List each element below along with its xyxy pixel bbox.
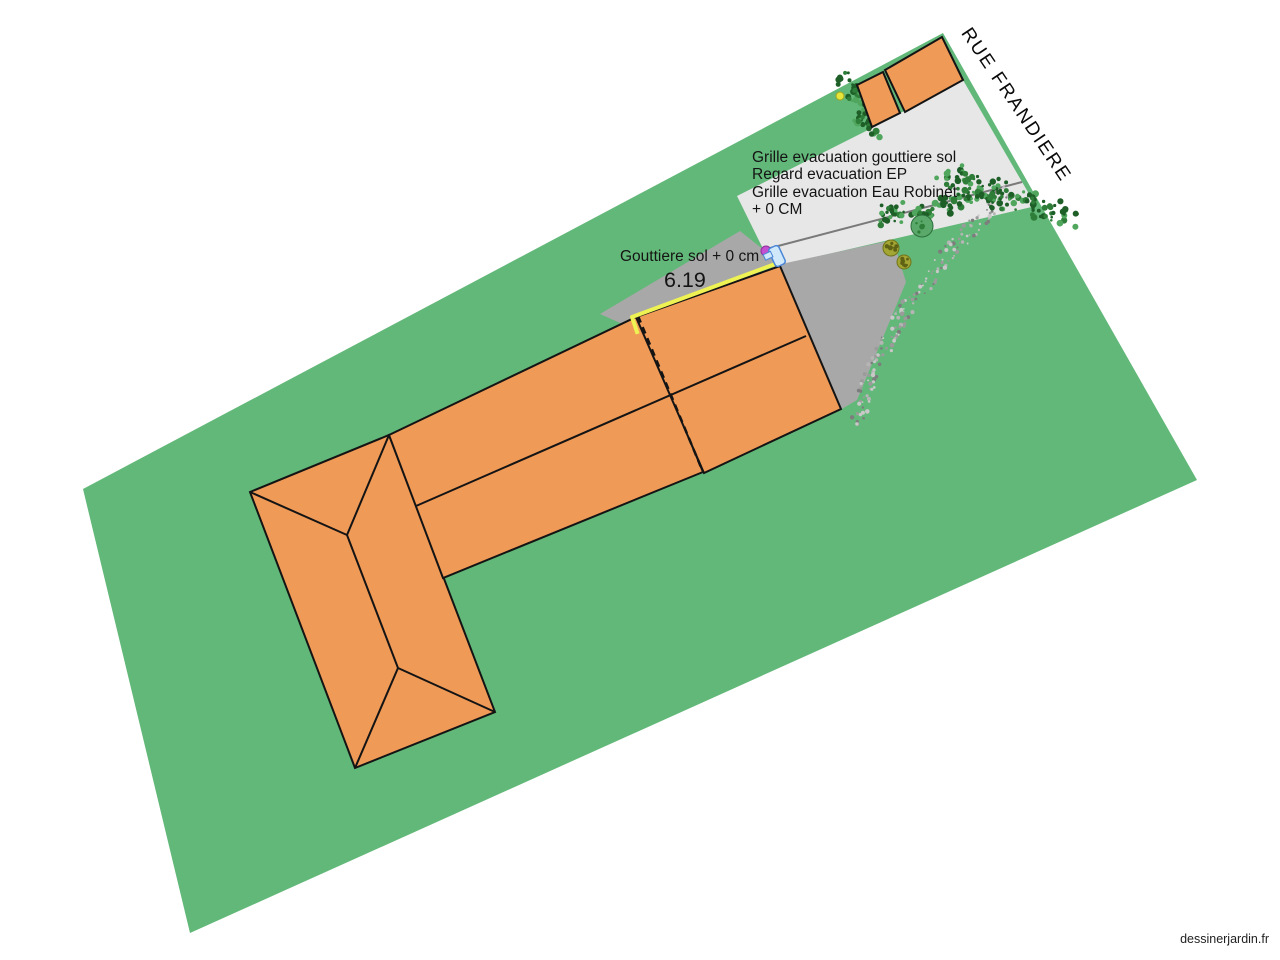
gravel-dot [951,238,953,240]
gravel-dot [865,409,870,414]
gravel-dot [986,209,988,211]
hedge-blob [1060,209,1066,215]
gravel-dot [882,337,884,339]
gravel-dot [928,270,930,272]
gravel-dot [896,316,900,320]
hedge-blob [996,177,1000,181]
gravel-dot [988,218,990,220]
hedge-blob [969,200,973,204]
hedge-blob [962,194,966,198]
gravel-dot [868,400,871,403]
evacuation-annotation-line-4: + 0 CM [752,201,957,218]
hedge-blob [1004,188,1009,193]
gravel-dot [969,234,971,236]
gravel-dot [890,316,894,320]
gravel-dot [891,336,893,338]
hedge-blob [965,189,968,192]
bush-dot [919,224,924,229]
gravel-dot [929,287,932,290]
gravel-dot [910,310,914,314]
hedge-blob [1042,200,1045,203]
gravel-dot [850,415,854,419]
bush-dot [921,220,923,222]
watermark: dessinerjardin.fr [1180,932,1269,946]
gutter-annotation[interactable]: Gouttiere sol + 0 cm [620,248,759,266]
gravel-dot [947,260,949,262]
gravel-dot [867,374,870,377]
marker-yellow-dot[interactable] [836,92,844,100]
hedge-blob [837,75,843,81]
hedge-blob [991,201,994,204]
gravel-dot [903,317,907,321]
hedge-blob [957,201,963,207]
hedge-blob [860,115,864,119]
gravel-dot [898,304,902,308]
hedge-blob [843,71,847,75]
gravel-dot [936,270,939,273]
hedge-blob [848,78,852,82]
hedge-blob [1000,195,1004,199]
gravel-dot [971,219,974,222]
hedge-blob [1037,209,1041,213]
hedge-blob [869,131,875,137]
gravel-dot [911,298,914,301]
hedge-blob [989,205,993,209]
gravel-dot [896,310,898,312]
gravel-dot [934,259,936,261]
bush-dot [893,248,897,252]
gravel-dot [900,312,905,317]
gravel-dot [959,242,961,244]
gravel-dot [912,302,914,304]
bush-olive-2[interactable] [897,255,911,269]
gravel-dot [871,362,873,364]
gravel-dot [894,312,897,315]
gravel-dot [918,285,922,289]
gravel-dot [866,394,869,397]
hedge-blob [987,194,994,201]
hedge-blob [899,220,903,224]
gravel-dot [855,422,858,425]
gravel-dot [856,412,859,415]
hedge-blob [1030,212,1035,217]
gravel-dot [870,388,873,391]
gravel-dot [962,224,966,228]
gravel-dot [979,223,981,225]
bush-dot [906,264,908,266]
gravel-dot [953,255,955,257]
hedge-blob [997,192,1000,195]
hedge-blob [1047,203,1053,209]
gravel-dot [944,245,946,247]
bush-dot [915,222,917,224]
hedge-blob [1057,198,1063,204]
hedge-blob [991,185,996,190]
gravel-dot [972,234,976,238]
gravel-dot [957,247,959,249]
hedge-blob [975,194,980,199]
hedge-blob [1050,219,1053,222]
hedge-blob [981,185,984,188]
hedge-blob [1015,194,1020,199]
gravel-dot [873,360,876,363]
hedge-blob [876,134,882,140]
hedge-blob [1042,205,1048,211]
gravel-dot [881,353,884,356]
evacuation-annotation-line-1: Grille evacuation gouttiere sol [752,149,957,166]
gravel-dot [978,229,980,231]
hedge-blob [878,220,881,223]
gravel-dot [898,325,901,328]
gravel-dot [863,396,865,398]
bush-dot [902,263,906,267]
gravel-dot [890,327,894,331]
hedge-blob [1076,213,1079,216]
gravel-dot [937,267,940,270]
gravel-dot [915,298,918,301]
gravel-dot [942,259,944,261]
gravel-dot [924,292,926,294]
hedge-blob [853,88,858,93]
hedge-blob [979,192,985,198]
gravel-dot [943,266,947,270]
gravel-dot [961,240,964,243]
hedge-blob [960,163,965,168]
gravel-dot [932,283,934,285]
gravel-dot [857,402,861,406]
hedge-blob [878,222,884,228]
gravel-dot [944,248,948,252]
hedge-blob [1057,220,1064,227]
hedge-blob [857,110,862,115]
bush-dot [890,242,893,245]
gravel-dot [874,355,877,358]
bush-dot [888,245,893,250]
gravel-dot [890,349,893,352]
hedge-blob [856,119,862,125]
bush-dot [900,257,904,261]
gravel-dot [949,243,953,247]
gravel-dot [901,299,905,303]
gravel-dot [867,379,869,381]
hedge-blob [1050,216,1053,219]
gravel-dot [952,257,954,259]
hedge-blob [1005,203,1009,207]
hedge-blob [977,185,981,189]
gravel-dot [925,277,927,279]
garden-plan-page: Grille evacuation gouttiere sol Regard e… [0,0,1280,960]
hedge-blob [1008,192,1014,198]
gravel-dot [958,237,961,240]
evacuation-annotation-line-2: Regard evacuation EP [752,166,957,183]
gravel-dot [922,285,924,287]
hedge-blob [1027,194,1030,197]
gravel-dot [871,356,875,360]
hedge-blob [976,179,981,184]
hedge-blob [1000,201,1003,204]
gravel-dot [938,250,942,254]
gravel-dot [860,382,863,385]
gravel-dot [913,293,916,296]
hedge-blob [847,71,850,74]
gravel-dot [894,326,897,329]
evacuation-annotation-line-3: Grille evacuation Eau Robinet [752,184,957,201]
gravel-dot [873,386,876,389]
hedge-blob [964,197,968,201]
gravel-dot [960,228,963,231]
gravel-dot [885,347,888,350]
hedge-blob [965,176,971,182]
hedge-blob [970,197,973,200]
gravel-dot [960,233,963,236]
hedge-blob [1053,204,1056,207]
gravel-dot [859,413,862,416]
gravel-dot [897,330,901,334]
hedge-blob [962,171,968,177]
hedge-blob [1011,200,1017,206]
evacuation-annotation[interactable]: Grille evacuation gouttiere sol Regard e… [752,149,957,219]
hedge-blob [972,191,975,194]
gravel-dot [880,339,883,342]
hedge-blob [1004,180,1008,184]
gravel-dot [878,363,882,367]
gravel-dot [868,382,872,386]
gravel-dot [863,372,867,376]
gravel-dot [940,267,942,269]
gravel-dot [925,280,927,282]
bush-dot [894,244,898,248]
gravel-dot [871,373,875,377]
gravel-dot [970,224,973,227]
gravel-dot [976,216,979,219]
gravel-dot [941,261,944,264]
hedge-blob [988,183,991,186]
gravel-dot [932,270,934,272]
hedge-blob [1030,196,1034,200]
hedge-blob [1051,211,1055,215]
bush-dot [906,258,909,261]
hedge-blob [836,82,841,87]
gravel-dot [880,347,883,350]
hedge-blob [957,193,960,196]
hedge-blob [1014,208,1017,211]
gravel-dot [880,341,884,345]
gravel-dot [931,273,933,275]
gravel-dot [909,296,911,298]
gutter-dimension-label[interactable]: 6.19 [664,268,706,293]
hedge-blob [1043,214,1048,219]
gravel-dot [857,389,861,393]
gravel-dot [993,212,996,215]
gravel-dot [896,333,898,335]
hedge-blob [999,207,1004,212]
hedge-blob [1025,199,1030,204]
hedge-blob [1031,209,1034,212]
plan-canvas [0,0,1280,960]
gravel-dot [862,417,865,420]
gravel-dot [862,401,864,403]
gravel-dot [892,339,896,343]
bush-dot [917,230,920,233]
gravel-dot [967,243,969,245]
bush-olive-1[interactable] [883,240,899,256]
gravel-dot [968,220,970,222]
hedge-blob [893,220,896,223]
gravel-dot [875,347,879,351]
hedge-blob [976,175,979,178]
gravel-dot [985,222,989,226]
gravel-dot [862,406,864,408]
hedge-blob [968,187,971,190]
gravel-dot [915,292,918,295]
gravel-dot [989,212,992,215]
gravel-dot [1005,196,1007,198]
hedge-blob [1031,200,1035,204]
hedge-blob [1072,224,1078,230]
hedge-blob [851,99,854,102]
hedge-blob [1022,190,1025,193]
gravel-dot [952,248,956,252]
gravel-dot [890,343,895,348]
gravel-dot [966,235,969,238]
gravel-dot [866,362,870,366]
